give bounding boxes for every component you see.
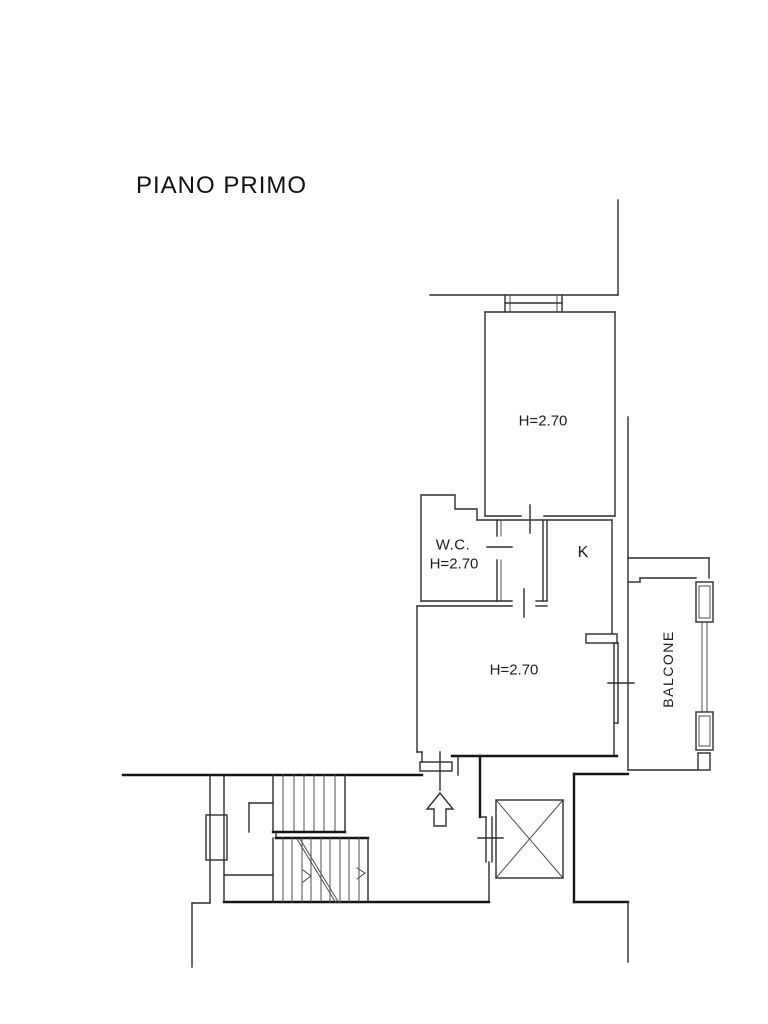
plan-rect xyxy=(420,762,452,771)
label-wc-name: W.C. xyxy=(436,537,471,554)
wall-segment xyxy=(357,873,365,879)
label-kitchen: K xyxy=(578,544,589,562)
wall-segment xyxy=(300,839,339,903)
label-balcony: BALCONE xyxy=(660,630,676,707)
wall-segment xyxy=(303,870,311,876)
plan-rect xyxy=(586,634,617,643)
plan-rect xyxy=(698,753,710,770)
wall-segment xyxy=(357,868,365,873)
plan-rect xyxy=(699,716,710,746)
plan-rect xyxy=(699,586,710,618)
stairs-up-arrow-icon xyxy=(427,793,453,826)
wall-segment xyxy=(303,876,311,882)
floor-plan-drawing xyxy=(0,0,768,1024)
label-wc-height: H=2.70 xyxy=(430,556,479,573)
floor-plan-page: PIANO PRIMO H=2.70W.C.H=2.70KH=2.70BALCO… xyxy=(0,0,768,1024)
label-bedroom-height: H=2.70 xyxy=(519,413,568,430)
label-living-height: H=2.70 xyxy=(490,662,539,679)
